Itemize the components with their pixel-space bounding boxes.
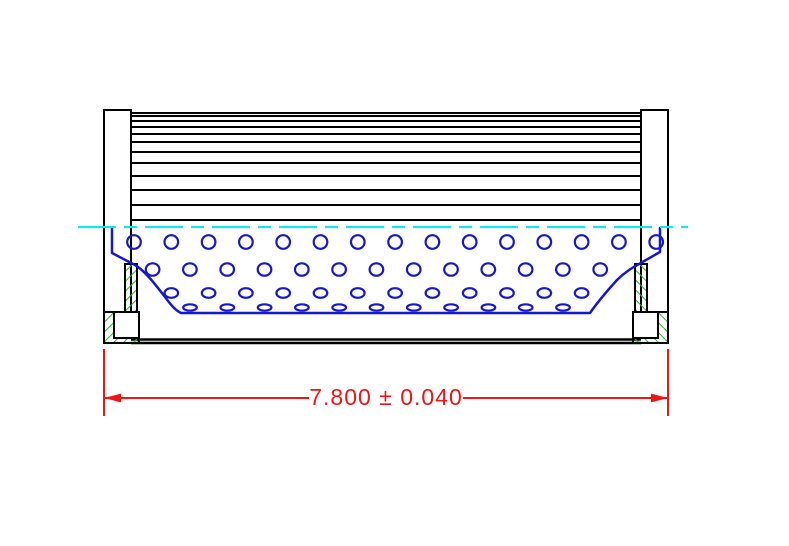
perforation-hole [444, 304, 458, 310]
perforation-hole [295, 263, 309, 275]
perforation-hole [575, 235, 589, 249]
perforation-hole [183, 263, 197, 275]
shell-bottom [131, 340, 641, 344]
perforation-hole [426, 288, 440, 298]
perforation-hole [351, 288, 365, 298]
core-boundary [112, 228, 660, 313]
perforation-hole [332, 304, 346, 310]
perforation-hole [202, 288, 216, 298]
perforation-hole [463, 235, 477, 249]
perforation-hole [538, 235, 552, 249]
perforation-hole [351, 235, 365, 249]
perforation-hole [370, 304, 384, 310]
perforation-hole [276, 288, 290, 298]
perforation-hole [146, 263, 160, 275]
perforation-hole [221, 304, 235, 310]
dim-arrow-right [651, 394, 668, 403]
perforation-hole [258, 304, 272, 310]
perforation-hole [556, 263, 570, 275]
cap-seal-strip [635, 264, 647, 312]
perforation-hole [575, 288, 589, 298]
perforation-hole [165, 288, 179, 298]
perforation-hole [482, 263, 496, 275]
perforation-hole [239, 235, 253, 249]
perforation-hole [202, 235, 216, 249]
perforation-hole [519, 304, 533, 310]
perforation-hole [482, 304, 496, 310]
perforation-hole [500, 235, 514, 249]
cap-seal-strip [125, 264, 137, 312]
perforation-hole [407, 263, 421, 275]
perforation-hole [407, 304, 421, 310]
perforation-hole [612, 235, 626, 249]
perforation-hole [426, 235, 440, 249]
perforation-hole [444, 263, 458, 275]
perforation-hole [538, 288, 552, 298]
perforation-hole [276, 235, 290, 249]
perforation-hole [314, 288, 328, 298]
perforations [127, 235, 663, 310]
perforation-hole [463, 288, 477, 298]
perforation-hole [258, 263, 272, 275]
perforation-hole [556, 304, 570, 310]
technical-drawing-canvas: 7.800 ± 0.040 [0, 0, 789, 546]
perforation-hole [220, 263, 234, 275]
perforation-hole [295, 304, 309, 310]
cap-foot-insert [633, 312, 658, 338]
drawing-stage: 7.800 ± 0.040 [0, 0, 789, 546]
perforation-hole [165, 235, 179, 249]
pleat-block [131, 113, 641, 220]
perforation-hole [332, 263, 346, 275]
dimension-text: 7.800 ± 0.040 [309, 384, 463, 410]
perforation-hole [183, 304, 197, 310]
dim-arrow-left [104, 394, 121, 403]
perforation-hole [239, 288, 253, 298]
pleat-block-outline [131, 113, 641, 220]
perforation-hole [370, 263, 384, 275]
perforation-hole [314, 235, 328, 249]
perforation-hole [519, 263, 533, 275]
cap-foot-insert [114, 312, 139, 338]
perforation-hole [388, 235, 402, 249]
perforation-hole [388, 288, 402, 298]
perforation-hole [500, 288, 514, 298]
perforation-hole [593, 263, 607, 275]
